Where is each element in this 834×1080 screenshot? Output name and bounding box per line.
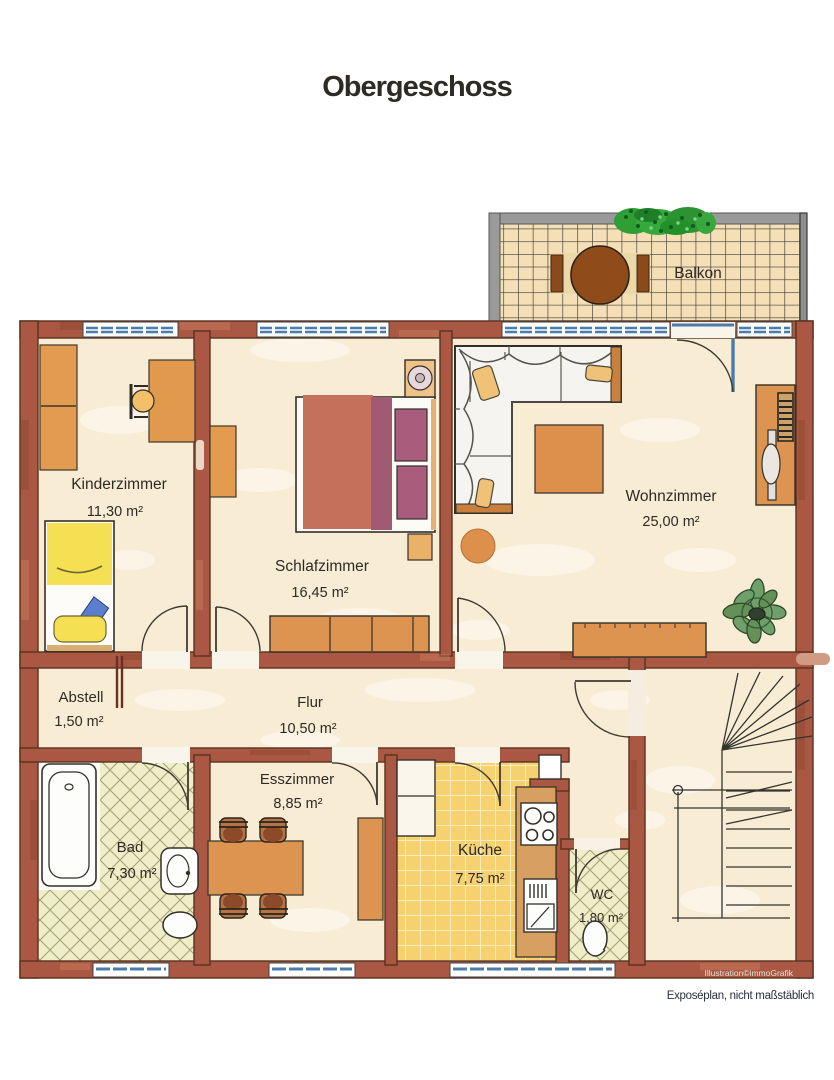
svg-text:Bad: Bad <box>117 839 144 856</box>
svg-text:Esszimmer: Esszimmer <box>260 771 334 788</box>
svg-text:7,75 m²: 7,75 m² <box>455 871 504 887</box>
svg-text:16,45 m²: 16,45 m² <box>291 585 348 601</box>
svg-text:7,30 m²: 7,30 m² <box>107 866 156 882</box>
svg-text:8,85 m²: 8,85 m² <box>273 796 322 812</box>
svg-text:Wohnzimmer: Wohnzimmer <box>625 488 716 505</box>
svg-text:Illustration©immoGrafik: Illustration©immoGrafik <box>705 968 794 978</box>
svg-text:1,50 m²: 1,50 m² <box>54 714 103 730</box>
svg-text:WC: WC <box>591 887 614 902</box>
svg-text:Abstell: Abstell <box>58 689 103 706</box>
svg-text:Flur: Flur <box>297 694 323 711</box>
svg-text:Schlafzimmer: Schlafzimmer <box>275 558 369 575</box>
svg-text:Balkon: Balkon <box>674 265 721 282</box>
svg-text:Obergeschoss: Obergeschoss <box>322 71 511 103</box>
svg-text:11,30 m²: 11,30 m² <box>87 504 143 520</box>
svg-text:Exposéplan, nicht maßstäblich: Exposéplan, nicht maßstäblich <box>667 990 814 1002</box>
svg-text:Kinderzimmer: Kinderzimmer <box>71 476 167 493</box>
svg-text:25,00 m²: 25,00 m² <box>642 514 699 530</box>
svg-text:1,80 m²: 1,80 m² <box>579 910 624 925</box>
svg-text:10,50 m²: 10,50 m² <box>279 721 336 737</box>
svg-text:Küche: Küche <box>458 842 502 859</box>
